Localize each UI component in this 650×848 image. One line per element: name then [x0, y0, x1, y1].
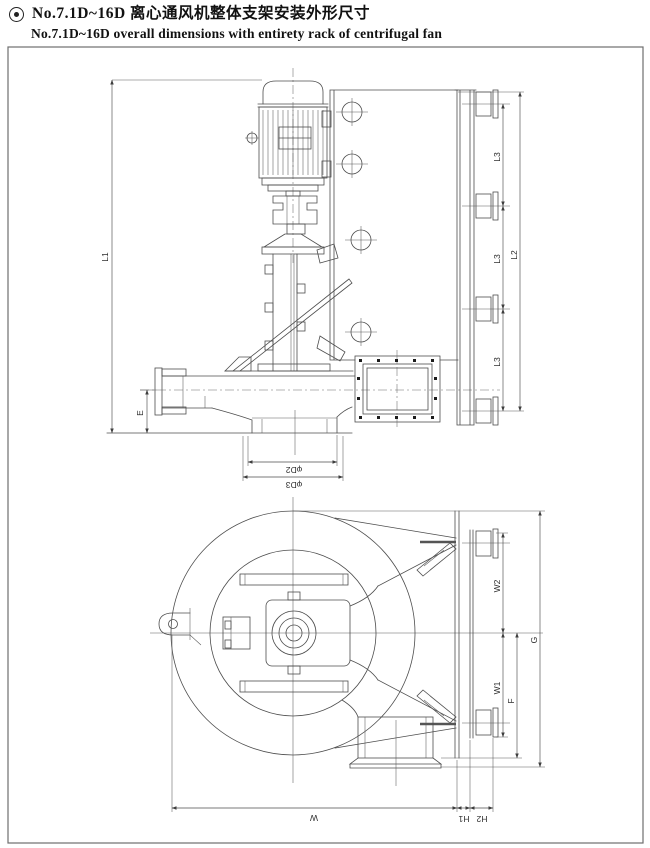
dim-label-w1: W1 [492, 681, 502, 694]
plate-hole [336, 98, 368, 126]
side-view: L1 L3 L3 L3 L2 E [100, 68, 524, 490]
dim-label-d3: φD3 [286, 480, 303, 490]
plate-hole [336, 150, 368, 178]
inlet-pipe [140, 368, 500, 415]
dim-label-l2: L2 [509, 250, 519, 260]
plan-view: W2 W1 F G W H1 [150, 497, 545, 824]
dimension-l3: L3 L3 L3 [492, 104, 503, 411]
catalog-page: No.7.1D~16D 离心通风机整体支架安装外形尺寸 No.7.1D~16D … [0, 0, 650, 848]
inlet-flange [155, 368, 162, 415]
drawing-frame [8, 47, 643, 843]
rail-clamp-plan [417, 690, 510, 737]
plate-hole [345, 318, 377, 346]
dim-label-h2: H2 [476, 814, 487, 824]
dim-label-d2: φD2 [286, 465, 303, 475]
support-bar [240, 574, 348, 585]
dimension-l1: L1 [100, 80, 262, 433]
dim-label-l3: L3 [492, 254, 502, 264]
diagonal-brace [225, 244, 352, 371]
volute-outlet [212, 407, 352, 455]
mounting-rail [455, 90, 476, 425]
rail-clamp [462, 397, 524, 425]
dimension-w2-w1: W2 W1 [492, 533, 508, 737]
technical-drawing: L1 L3 L3 L3 L2 E [0, 0, 650, 848]
plate-hole [345, 226, 377, 254]
rail-clamp-plan [417, 529, 510, 576]
dim-label-w2: W2 [492, 579, 502, 592]
wall-flange [355, 350, 440, 428]
dim-label-l3: L3 [492, 357, 502, 367]
dimension-g: G [293, 511, 545, 767]
mounting-rail-plan [455, 511, 473, 758]
dim-label-f: F [506, 698, 516, 703]
coupling [273, 191, 317, 234]
dim-label-g: G [529, 637, 539, 644]
dim-label-w: W [310, 813, 318, 823]
discharge-duct [342, 700, 441, 786]
dimension-e: E [135, 390, 157, 433]
mounting-plate [322, 90, 458, 360]
scroll-casing [150, 497, 543, 783]
support-bar [240, 681, 348, 692]
dim-label-l3: L3 [492, 152, 502, 162]
dim-label-h1: H1 [458, 814, 469, 824]
dim-label-l1: L1 [100, 252, 110, 262]
dim-label-e: E [135, 410, 145, 416]
dimension-d2-d3: φD2 φD3 [243, 435, 343, 490]
inlet-nose [159, 608, 201, 645]
dimension-l2: L2 [458, 92, 524, 411]
dimension-f: F [441, 633, 522, 758]
